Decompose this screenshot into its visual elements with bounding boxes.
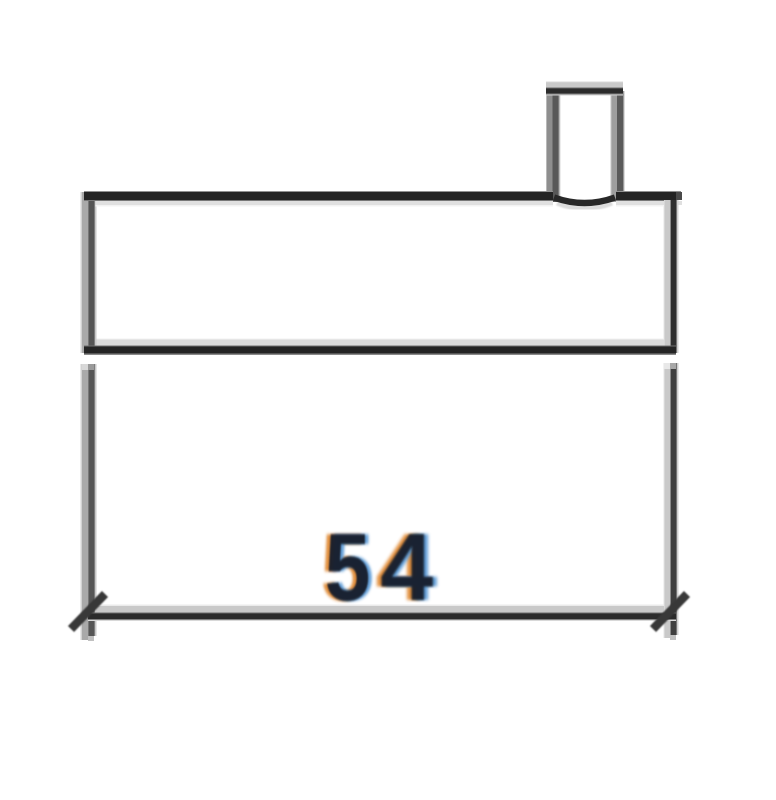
svg-text:5: 5 [325,514,371,621]
svg-text:4: 4 [380,514,433,621]
